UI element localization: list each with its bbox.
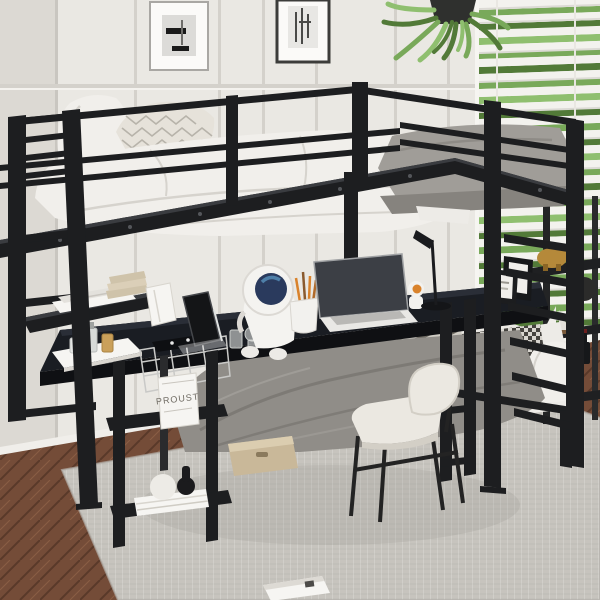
standing-book: PROUST xyxy=(155,373,199,429)
front-rail-post xyxy=(226,95,238,206)
white-sphere-ornament xyxy=(150,474,176,500)
art-line xyxy=(181,20,183,45)
box-handle xyxy=(256,452,268,457)
white-leaning-books xyxy=(146,283,176,326)
perfume-bottle-2 xyxy=(102,334,113,352)
astronaut-boot-1 xyxy=(241,346,259,358)
post-far-left xyxy=(8,115,26,422)
wall-rail-molding xyxy=(0,84,477,88)
art-bar-2 xyxy=(172,46,189,51)
tower-post-front-right xyxy=(206,350,218,542)
cup-body xyxy=(290,298,318,333)
tower-post-front-left xyxy=(113,360,125,548)
product-photo-loft-bed: PROUST xyxy=(0,0,600,600)
post-far-right xyxy=(566,118,584,468)
post-middle-top xyxy=(352,82,368,180)
picture-frame-left xyxy=(150,2,208,70)
etagere-post-2 xyxy=(592,196,598,420)
mini-visor xyxy=(413,285,422,294)
scene-canvas: PROUST xyxy=(0,0,600,600)
laptop-screen xyxy=(314,254,408,318)
laptop xyxy=(314,254,418,332)
astronaut-boot-2 xyxy=(269,348,287,360)
post-front-right xyxy=(484,100,501,488)
wall-rail-highlight xyxy=(0,88,477,90)
picture-frame-right xyxy=(277,0,329,62)
